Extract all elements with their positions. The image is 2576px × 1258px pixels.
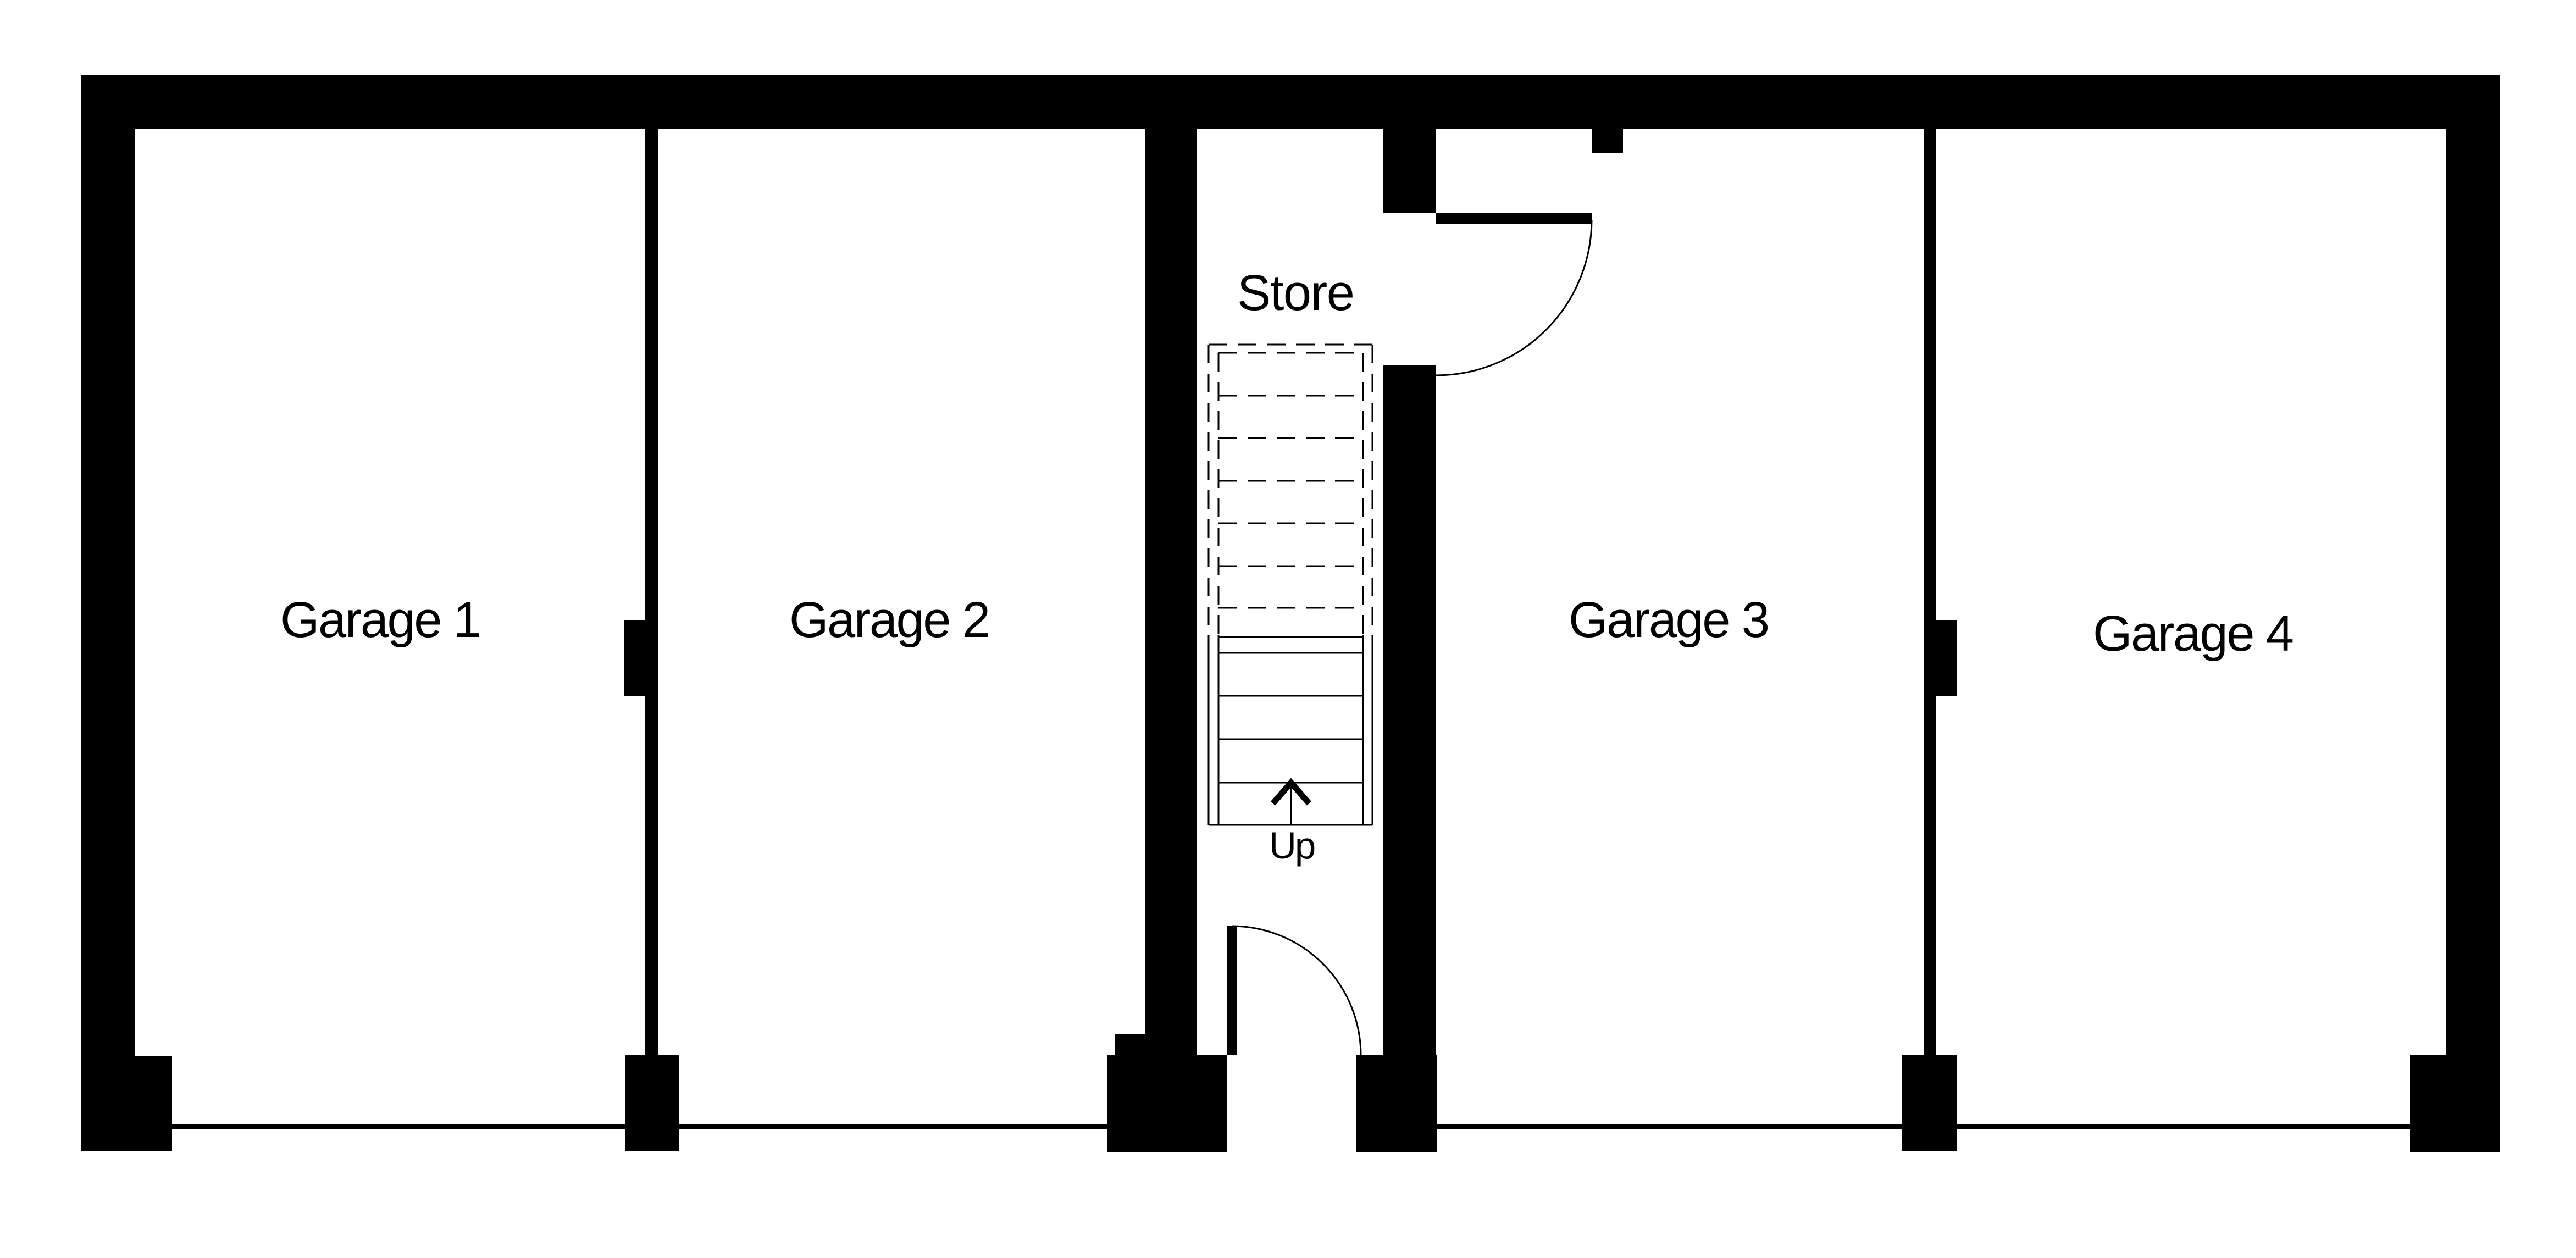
svg-text:Garage 2: Garage 2 bbox=[789, 592, 989, 648]
svg-text:Garage 3: Garage 3 bbox=[1569, 592, 1769, 648]
svg-text:Store: Store bbox=[1237, 265, 1354, 321]
svg-text:Garage 4: Garage 4 bbox=[2093, 606, 2293, 662]
svg-text:Garage 1: Garage 1 bbox=[280, 592, 480, 648]
svg-text:Up: Up bbox=[1269, 824, 1315, 867]
